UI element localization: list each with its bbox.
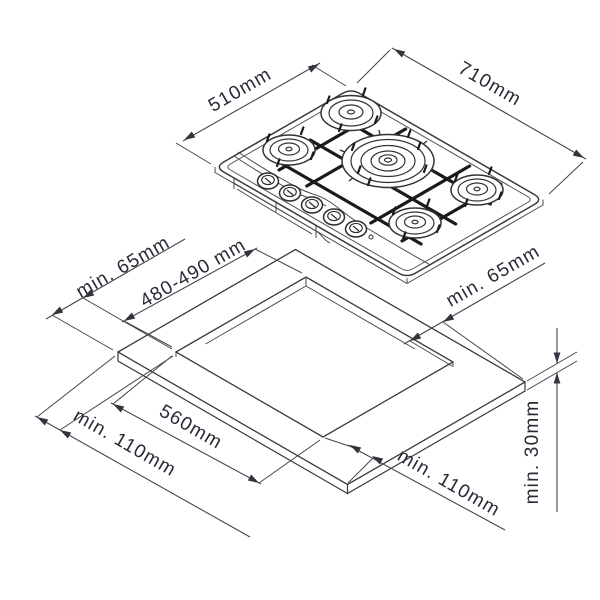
arrowhead	[182, 132, 195, 143]
control-knob	[302, 197, 323, 213]
burner-right	[451, 175, 503, 205]
dim-label-clearance-side-right: min. 65mm	[443, 241, 544, 312]
control-knob	[324, 209, 345, 225]
arrowhead	[441, 314, 454, 325]
control-knob	[258, 173, 279, 189]
arrowhead	[50, 307, 63, 318]
extension-line	[312, 65, 346, 86]
dim-label-worktop-thickness: min. 30mm	[522, 400, 543, 505]
dimension-worktop-thickness: min. 30mm	[522, 328, 577, 512]
burner-back-center	[321, 96, 381, 131]
arrowhead	[35, 414, 48, 425]
arrowhead	[392, 46, 405, 57]
extension-line	[83, 298, 172, 349]
dim-label-clearance-front-right: min. 110mm	[394, 445, 504, 521]
arrowhead	[111, 401, 124, 412]
extension-line	[357, 50, 390, 83]
extension-line	[37, 356, 115, 417]
installation-diagram: 510mm 710mm min. 65mm	[0, 0, 600, 600]
extension-line	[549, 162, 583, 194]
control-knob	[346, 221, 367, 237]
arrowhead	[58, 427, 71, 438]
extension-line	[52, 315, 113, 350]
dim-label-hob-width: 710mm	[454, 58, 525, 111]
extension-line	[527, 361, 577, 390]
arrowhead	[122, 313, 135, 324]
extension-line	[527, 352, 577, 381]
arrowhead	[248, 475, 261, 486]
burner-front-center	[389, 208, 441, 238]
arrowhead	[573, 150, 586, 161]
burner-left	[263, 135, 315, 165]
diagram-canvas: 510mm 710mm min. 65mm	[0, 0, 600, 600]
arrowhead	[308, 61, 321, 72]
extension-line	[176, 143, 211, 164]
worktop-drawing: min. 65mm 480-490 mm min. 65mm	[35, 232, 577, 537]
control-knob	[280, 185, 301, 201]
